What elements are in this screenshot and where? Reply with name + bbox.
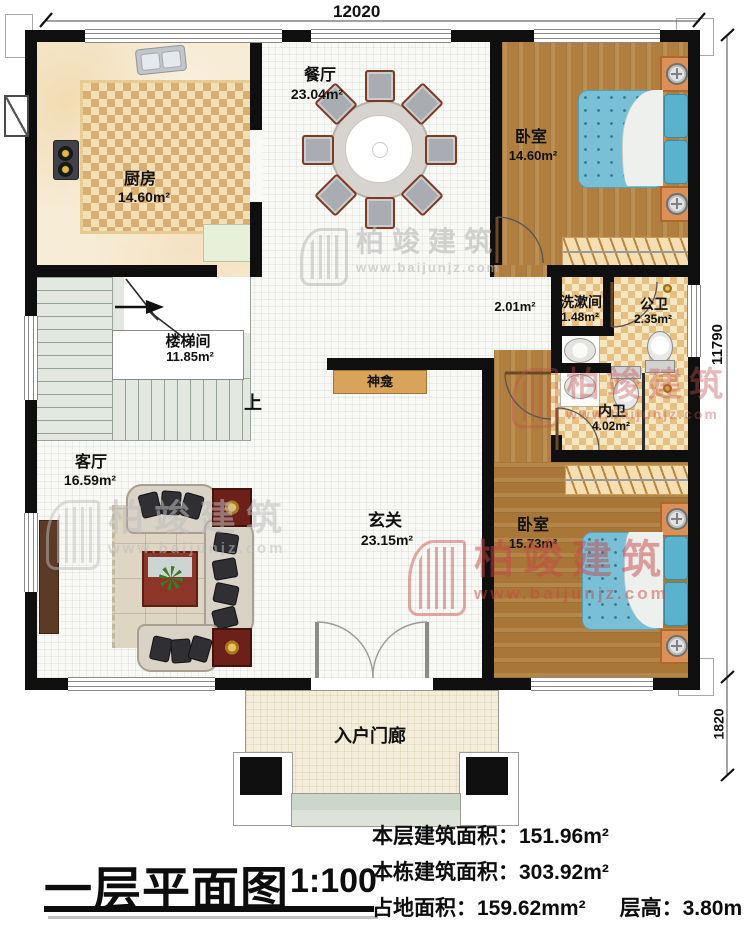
room-area-kitchen: 14.60m² <box>118 190 170 205</box>
room-area-living: 16.59m² <box>64 473 116 488</box>
burner <box>58 162 73 177</box>
window-kitchen-top <box>85 29 282 43</box>
wall-bedroom-top-left <box>490 42 502 265</box>
corridor-area-label: 2.01m² <box>494 300 535 314</box>
washbasin <box>564 374 596 399</box>
wardrobe-bottom <box>565 465 690 495</box>
stat-height-label: 层高： <box>620 897 683 920</box>
dim-label-top: 12020 <box>330 2 383 22</box>
stat-building-area: 本栋建筑面积：303.92m² <box>372 856 609 886</box>
shrine-label: 神龛 <box>367 374 393 389</box>
wall-bath-bottom <box>551 450 688 462</box>
window-living-bottom <box>68 677 215 691</box>
sofa-pillow <box>212 531 239 555</box>
lamp-icon <box>666 635 688 657</box>
floor-drain <box>663 384 672 393</box>
sofa-pillow <box>179 492 205 521</box>
stat-building-area-value: 303.92m² <box>519 861 609 884</box>
room-area-bedroom-top: 14.60m² <box>509 149 557 163</box>
stat-floor-area-value: 151.96m² <box>519 825 609 848</box>
dim-tick <box>721 769 734 781</box>
sofa-pillow <box>149 635 174 663</box>
wall-washroom-bottom <box>551 326 611 336</box>
stat-footprint-value: 159.62mm² <box>477 897 586 920</box>
window-bath-right <box>687 285 701 357</box>
bed-bottom-pillow <box>664 582 688 626</box>
dim-tick <box>40 13 52 27</box>
dim-label-right-upper: 11790 <box>709 321 726 368</box>
lamp-icon <box>666 508 688 530</box>
room-area-washroom: 1.48m² <box>561 311 599 324</box>
window-bedroom-bottom <box>531 677 653 691</box>
sofa-pillow <box>137 491 162 519</box>
flue-box <box>4 95 29 137</box>
room-label-kitchen: 厨房 <box>124 172 156 189</box>
end-table-top <box>212 488 252 527</box>
room-label-living: 客厅 <box>75 455 107 472</box>
room-area-private-bath: 4.02m² <box>592 420 630 433</box>
tv-console <box>39 520 59 634</box>
room-label-public-bath: 公卫 <box>640 297 668 312</box>
room-label-bedroom-top: 卧室 <box>515 130 547 147</box>
room-area-dining: 23.04m² <box>291 87 343 102</box>
stair-break-cut <box>124 277 250 333</box>
dim-tick <box>721 29 734 41</box>
stat-floor-area-label: 本层建筑面积： <box>372 825 519 848</box>
dim-label-right-lower: 1820 <box>711 705 727 742</box>
window-dining-top <box>311 29 451 43</box>
bed-top-pillow <box>664 94 688 138</box>
end-table-bottom <box>212 628 252 667</box>
washbasin <box>564 338 596 363</box>
title-underline <box>44 906 374 912</box>
sofa-right <box>204 519 254 637</box>
shower-partition <box>642 373 645 450</box>
wall-washroom-right <box>603 277 614 336</box>
title-underline-shadow <box>48 916 378 919</box>
bed-top-pillow <box>664 140 688 184</box>
burner <box>58 146 73 161</box>
floor-drain <box>663 284 672 293</box>
stat-floor-area: 本层建筑面积：151.96m² <box>372 820 609 850</box>
room-area-stairwell: 11.85m² <box>166 350 214 364</box>
dining-chair <box>425 135 457 165</box>
stair-flight-bottom <box>112 378 250 441</box>
hallway-floor <box>494 350 551 462</box>
bed-bottom-pillow <box>664 536 688 580</box>
stairs-up-label: 上 <box>244 394 262 413</box>
lamp-icon <box>666 63 688 85</box>
bedroom-top-doorway <box>494 265 547 277</box>
shrine: 神龛 <box>333 370 427 394</box>
room-label-foyer: 玄关 <box>368 512 402 530</box>
wall-between-sinks <box>551 363 611 373</box>
room-area-bedroom-bottom: 15.73m² <box>509 537 557 551</box>
dining-chair <box>365 197 395 229</box>
stat-footprint-label: 占地面积： <box>372 897 477 920</box>
room-label-stairwell: 楼梯间 <box>165 334 210 350</box>
kitchen-doorway <box>250 130 262 202</box>
stat-footprint-and-height: 占地面积：159.62mm²层高：3.80m <box>372 892 742 922</box>
entrance-opening <box>311 678 433 690</box>
toilet-public <box>647 331 673 363</box>
floor-plan-canvas: 神龛 <box>0 0 750 929</box>
window-bedroom-top <box>534 29 660 43</box>
stat-building-area-label: 本栋建筑面积： <box>372 861 519 884</box>
toilet-public-tank <box>645 360 675 373</box>
stat-height-value: 3.80m <box>683 897 743 920</box>
kitchen-mat <box>203 224 251 262</box>
sofa-bottom <box>137 624 219 672</box>
sofa-pillow <box>187 635 213 664</box>
room-area-public-bath: 2.35m² <box>634 313 672 326</box>
room-label-dining: 餐厅 <box>304 68 336 85</box>
room-label-private-bath: 内卫 <box>598 404 626 419</box>
kitchen-sink <box>135 44 187 75</box>
porch-column-left <box>240 757 282 795</box>
dim-tick <box>721 671 734 683</box>
stove <box>53 140 79 180</box>
dining-chair <box>302 135 334 165</box>
stair-flight-left <box>37 277 113 440</box>
dining-table-center <box>372 142 388 158</box>
sink-basin <box>161 50 182 69</box>
sofa-pillow <box>212 582 240 607</box>
window-living-left <box>24 513 38 592</box>
sofa-pillow <box>211 557 238 581</box>
kitchen-rug <box>80 80 254 234</box>
dining-chair <box>365 70 395 102</box>
sink-basin <box>140 52 161 71</box>
wardrobe-top <box>562 237 690 267</box>
coffee-table <box>142 551 198 607</box>
porch-column-right <box>466 757 508 795</box>
sofa-pillow <box>160 490 182 515</box>
room-label-bedroom-bottom: 卧室 <box>517 518 549 535</box>
lamp-icon <box>666 193 688 215</box>
plan-scale: 1:100 <box>290 862 377 901</box>
wall-outer-right <box>688 30 700 690</box>
plant <box>159 566 183 590</box>
wall-shrine <box>327 358 494 370</box>
wall-kitchen-bottom <box>25 265 217 277</box>
window-stair-left <box>24 316 38 400</box>
room-label-washroom: 洗漱间 <box>560 295 602 310</box>
room-area-foyer: 23.15m² <box>361 533 413 548</box>
room-label-porch: 入户门廊 <box>334 727 406 746</box>
wall-foyer-right <box>482 358 494 678</box>
